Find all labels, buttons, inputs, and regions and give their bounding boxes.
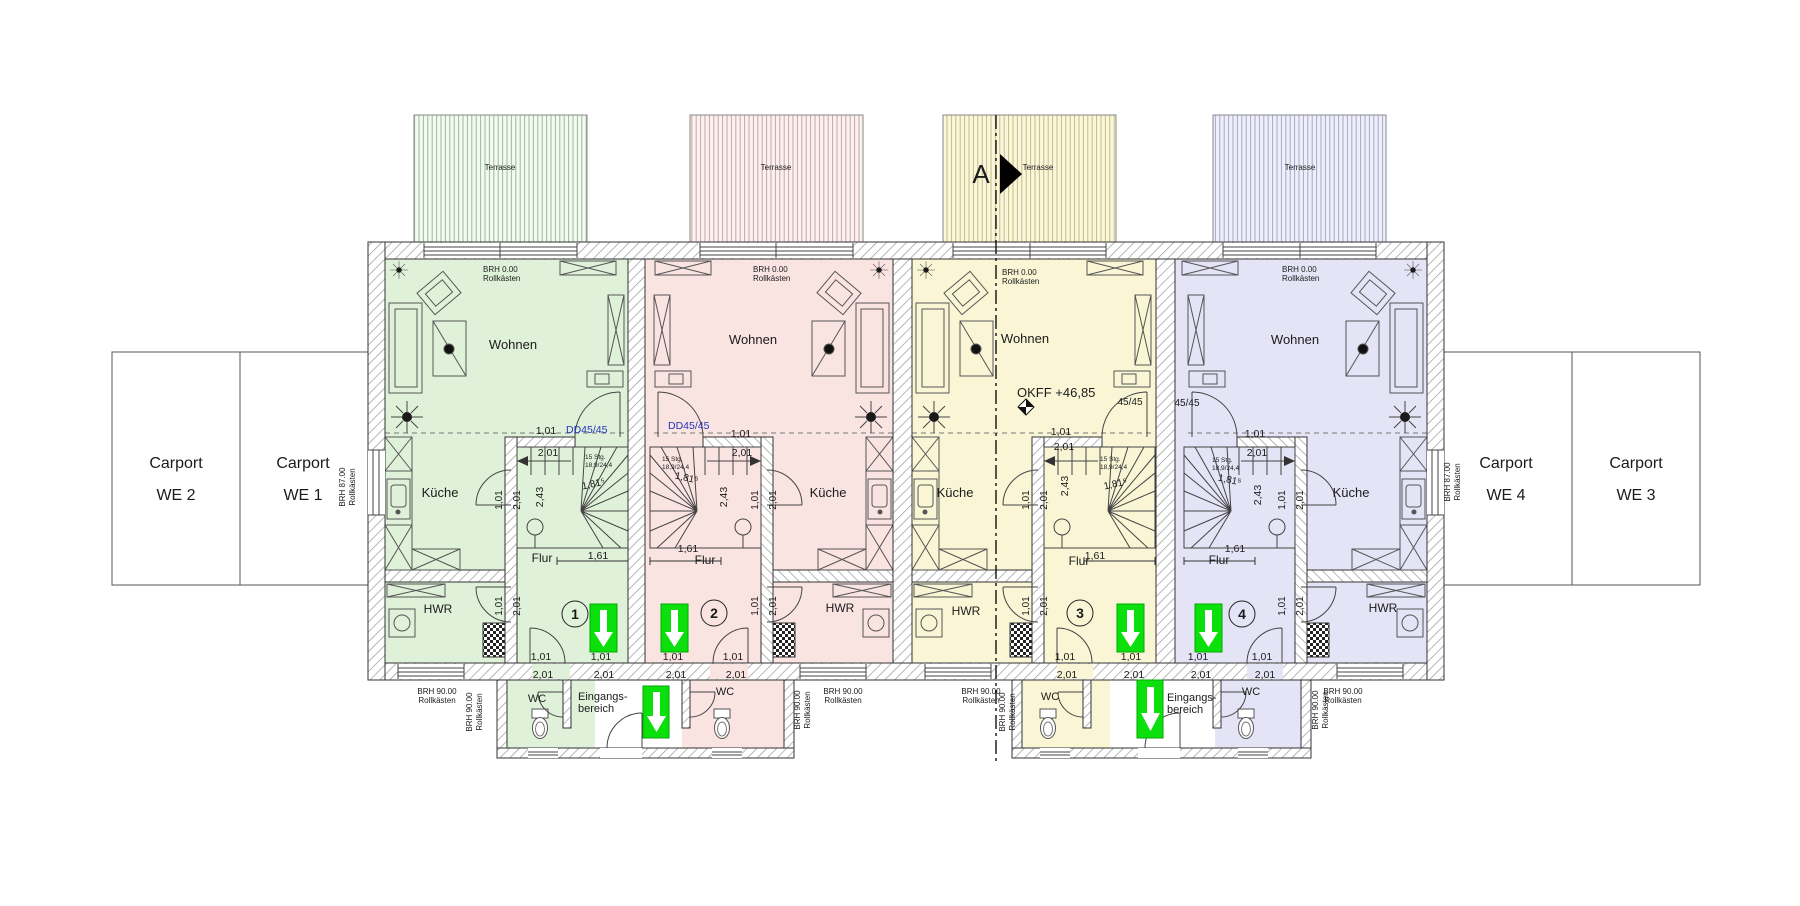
floorplan-page: Carport WE 2 Carport WE 1 Carport WE 4 C… [0,0,1800,906]
dim-bdoor-a1h: 2,01 [533,669,554,681]
terrace-door-2 [700,243,853,258]
carports-right: Carport WE 4 Carport WE 3 [1440,352,1700,585]
terrace-4-label: Terrasse [1285,163,1316,172]
note-brh90-3: BRH 90.00 [961,687,1001,696]
room-wc-1: WC [528,693,546,705]
stair-note-1b: 18,9/24,4 [585,462,612,469]
floorplan-svg: Carport WE 2 Carport WE 1 Carport WE 4 C… [0,0,1800,906]
dim-bdoor-b3h: 2,01 [1191,669,1212,681]
note-roll-4: Rollkästen [1282,274,1319,283]
toilet-3 [1040,709,1056,739]
dim-kdoor-3w: 1,01 [1021,490,1032,510]
stair-note-1a: 15 Stg. [585,454,606,461]
dim-run-1: 2,43 [534,487,546,508]
note-brh90-v4: BRH 90.00 [1311,690,1320,730]
section-label: A [972,159,990,189]
dim-hdoor-1h: 2,01 [512,596,523,616]
carport-we1-id: WE 1 [283,487,322,504]
carports-left: Carport WE 2 Carport WE 1 [112,352,371,585]
room-wc-3: WC [1041,691,1059,703]
dim-run-2: 2,43 [718,487,730,508]
unit-badge-3: 3 [1076,605,1084,621]
note-roll-3: Rollkästen [1002,277,1039,286]
note-brh90-v2r: Rollkästen [803,691,812,728]
terrace-door-4 [1223,243,1376,258]
dim-kdoor-2w: 1,01 [750,490,761,510]
entrance-arrow-lower-b [1137,680,1163,738]
dim-bdoor-b4h: 2,01 [1255,669,1276,681]
note-brh90-2r: Rollkästen [824,696,861,705]
stair-note-4a: 15 Stg. [1212,457,1233,464]
dim-bdoor-a4h: 2,01 [726,669,747,681]
unit-badge-1: 1 [571,606,579,622]
carport-we3-label: Carport [1609,455,1663,472]
room-wc-4: WC [1242,686,1260,698]
room-hwr-1: HWR [424,602,453,616]
terrace-door-1 [424,243,577,258]
note-brh90-1r: Rollkästen [418,696,455,705]
note-brh87-right-roll: Rollkästen [1453,463,1462,500]
stair-note-2a: 15 Stg. [662,456,683,463]
carport-we4-id: WE 4 [1486,487,1525,504]
terrace-2 [690,115,863,242]
dim-bdoor-a3h: 2,01 [666,669,687,681]
note-brh87-left-roll: Rollkästen [348,468,357,505]
dim-door-2w: 1,01 [731,428,752,440]
entrance-label-b2: bereich [1167,704,1203,716]
terrace-door-3 [953,243,1106,258]
note-brh90-v3: BRH 90.00 [998,692,1007,732]
level-annotation: OKFF +46,85 [1017,385,1095,400]
terrace-1 [414,115,587,242]
carport-we2-label: Carport [149,455,203,472]
dim-hdoor-3w: 1,01 [1021,596,1032,616]
dim-door-2h: 2,01 [732,447,753,459]
room-wohnen-2: Wohnen [729,332,777,347]
dim-door-3h: 2,01 [1054,441,1075,453]
column-4545-1: 45/45 [1117,397,1142,408]
room-hwr-4: HWR [1369,601,1398,615]
dim-bdoor-b1w: 1,01 [1055,651,1076,663]
dim-bdoor-b3w: 1,01 [1188,651,1209,663]
window-right [1427,450,1444,515]
entrance-label-a1: Eingangs- [578,691,628,703]
entrance-label-b1: Eingangs- [1167,692,1217,704]
note-brh87-right: BRH 87.00 [1443,462,1452,502]
dim-kdoor-1w: 1,01 [494,490,505,510]
unit-badge-2: 2 [710,605,718,621]
window-hwr-4 [1337,664,1403,679]
stair-note-4b: 18,9/24,4 [1212,465,1239,472]
note-roll-2: Rollkästen [753,274,790,283]
terrace-2-label: Terrasse [761,163,792,172]
note-brh90-v1r: Rollkästen [475,693,484,730]
dim-kdoor-2h: 2,01 [768,490,779,510]
column-4545-2: 45/45 [1174,398,1199,409]
terraces: Terrasse Terrasse Terrasse Terrasse [414,115,1386,242]
dim-run-3: 2,43 [1059,476,1071,497]
room-kueche-3: Küche [937,485,974,500]
note-brh90-v4r: Rollkästen [1321,691,1330,728]
room-wc-2: WC [716,686,734,698]
window-left [368,450,385,515]
dim-door-1h: 2,01 [538,447,559,459]
dim-bdoor-a2h: 2,01 [594,669,615,681]
dim-hdoor-4h: 2,01 [1295,596,1306,616]
dim-flur-2: 1,61 [678,543,699,555]
note-brh90-2: BRH 90.00 [823,687,863,696]
terrace-1-label: Terrasse [485,163,516,172]
room-wohnen-1: Wohnen [489,337,537,352]
beam-dd4545-1: DD45/45 [566,424,608,436]
dim-hdoor-2h: 2,01 [768,596,779,616]
dim-flur-1: 1,61 [588,550,609,562]
note-brh90-1: BRH 90.00 [417,687,457,696]
dim-door-1w: 1,01 [536,425,557,437]
toilet-2 [714,709,730,739]
note-brh0-2: BRH 0.00 [753,265,788,274]
dim-kdoor-4w: 1,01 [1277,490,1288,510]
dim-hdoor-4w: 1,01 [1277,596,1288,616]
dim-door-4w: 1,01 [1245,428,1266,440]
carport-we4-label: Carport [1479,455,1533,472]
dim-kdoor-4h: 2,01 [1295,490,1306,510]
dim-bdoor-b2h: 2,01 [1124,669,1145,681]
dim-hdoor-3h: 2,01 [1039,596,1050,616]
dim-kdoor-3h: 2,01 [1039,490,1050,510]
note-roll-1: Rollkästen [483,274,520,283]
window-hwr-1 [398,664,464,679]
dim-kdoor-1h: 2,01 [512,490,523,510]
room-flur-4: Flur [1209,553,1230,567]
note-brh0-3: BRH 0.00 [1002,268,1037,277]
beam-dd4545-2: DD45/45 [668,420,710,432]
room-kueche-1: Küche [422,485,459,500]
dim-run-4: 2,43 [1252,485,1264,506]
dim-door-4h: 2,01 [1247,447,1268,459]
carport-we1-label: Carport [276,455,330,472]
note-brh90-v2: BRH 90.00 [793,690,802,730]
unit-badge-4: 4 [1238,606,1246,622]
room-wohnen-4: Wohnen [1271,332,1319,347]
dim-bdoor-a2w: 1,01 [591,651,612,663]
room-flur-1: Flur [532,551,553,565]
stair-note-3b: 18,9/24,4 [1100,464,1127,471]
room-flur-2: Flur [695,553,716,567]
dim-bdoor-a1w: 1,01 [531,651,552,663]
window-hwr-3 [925,664,991,679]
dim-bdoor-b1h: 2,01 [1057,669,1078,681]
note-brh87-left: BRH 87.00 [338,467,347,507]
terrace-3 [943,115,1116,242]
entrance-arrow-lower-a [643,686,669,738]
note-brh0-1: BRH 0.00 [483,265,518,274]
note-brh0-4: BRH 0.00 [1282,265,1317,274]
dim-bdoor-a3w: 1,01 [663,651,684,663]
dim-flur-3: 1,61 [1085,550,1106,562]
dim-flur-4: 1,61 [1225,543,1246,555]
room-hwr-2: HWR [826,601,855,615]
dim-hdoor-2w: 1,01 [750,596,761,616]
note-brh90-v1: BRH 90.00 [465,692,474,732]
entrance-label-a2: bereich [578,703,614,715]
room-hwr-3: HWR [952,604,981,618]
note-brh90-v3r: Rollkästen [1008,693,1017,730]
stair-note-3a: 15 Stg. [1100,456,1121,463]
dim-hdoor-1w: 1,01 [494,596,505,616]
terrace-3-label: Terrasse [1023,163,1054,172]
toilet-1 [532,709,548,739]
terrace-4 [1213,115,1386,242]
dim-bdoor-a4w: 1,01 [723,651,744,663]
dim-bdoor-b4w: 1,01 [1252,651,1273,663]
note-brh90-3r: Rollkästen [962,696,999,705]
room-kueche-2: Küche [810,485,847,500]
window-hwr-2 [800,664,866,679]
toilet-4 [1238,709,1254,739]
dim-bdoor-b2w: 1,01 [1121,651,1142,663]
carport-we3-id: WE 3 [1616,487,1655,504]
carport-we2-id: WE 2 [156,487,195,504]
room-wohnen-3: Wohnen [1001,331,1049,346]
dim-door-3w: 1,01 [1051,426,1072,438]
room-kueche-4: Küche [1333,485,1370,500]
